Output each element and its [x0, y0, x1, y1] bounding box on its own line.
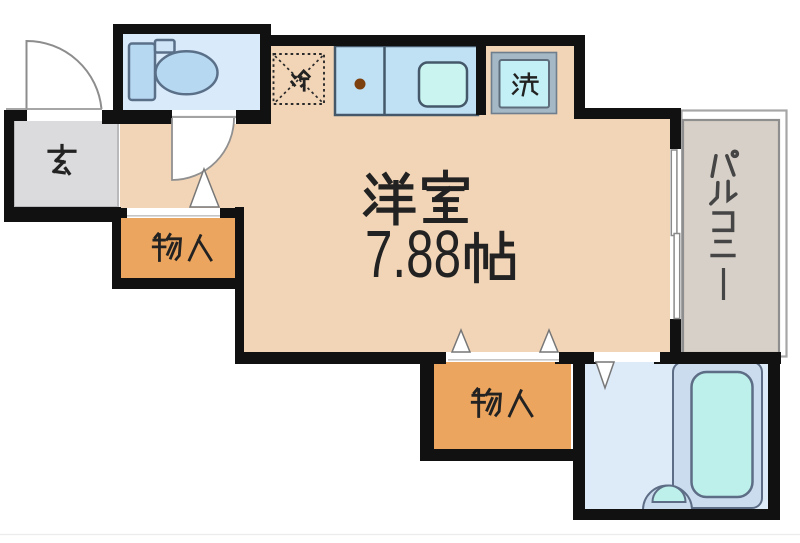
svg-text:7.88: 7.88 [365, 217, 461, 292]
